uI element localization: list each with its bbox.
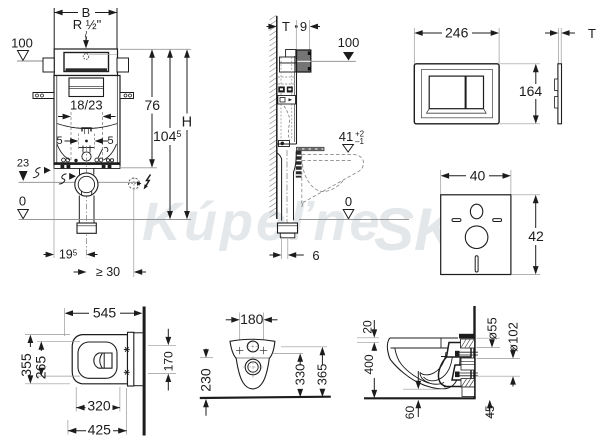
svg-text:76: 76 <box>145 97 161 113</box>
svg-text:0: 0 <box>19 194 26 209</box>
svg-text:230: 230 <box>198 368 214 392</box>
svg-text:–1: –1 <box>355 137 364 146</box>
svg-text:425: 425 <box>88 421 112 437</box>
svg-text:42: 42 <box>528 228 544 244</box>
svg-text:0: 0 <box>345 194 352 209</box>
svg-text:T: T <box>588 26 596 41</box>
svg-text:320: 320 <box>87 397 111 413</box>
svg-text:≥ 30: ≥ 30 <box>96 265 120 279</box>
svg-text:246: 246 <box>445 25 469 41</box>
svg-text:H: H <box>182 115 192 131</box>
svg-text:45: 45 <box>483 405 497 419</box>
svg-text:60: 60 <box>403 406 417 420</box>
svg-text:9: 9 <box>300 19 307 34</box>
svg-text:ø102: ø102 <box>505 322 520 352</box>
svg-text:330: 330 <box>293 364 308 386</box>
svg-text:545: 545 <box>93 305 117 321</box>
svg-text:164: 164 <box>519 83 543 99</box>
svg-text:170: 170 <box>162 351 176 371</box>
svg-text:ø55: ø55 <box>484 317 499 339</box>
svg-text:365: 365 <box>315 364 330 386</box>
svg-text:40: 40 <box>470 167 486 183</box>
svg-text:18/23: 18/23 <box>70 98 103 113</box>
svg-text:T: T <box>282 19 290 34</box>
svg-text:41: 41 <box>339 129 353 144</box>
svg-text:100: 100 <box>338 35 360 50</box>
svg-text:6: 6 <box>312 248 319 263</box>
svg-text:100: 100 <box>11 36 33 51</box>
svg-text:400: 400 <box>362 354 376 374</box>
svg-text:R ½": R ½" <box>73 17 102 32</box>
svg-text:180: 180 <box>240 311 264 327</box>
svg-text:265: 265 <box>33 356 49 380</box>
svg-text:23: 23 <box>17 157 29 169</box>
